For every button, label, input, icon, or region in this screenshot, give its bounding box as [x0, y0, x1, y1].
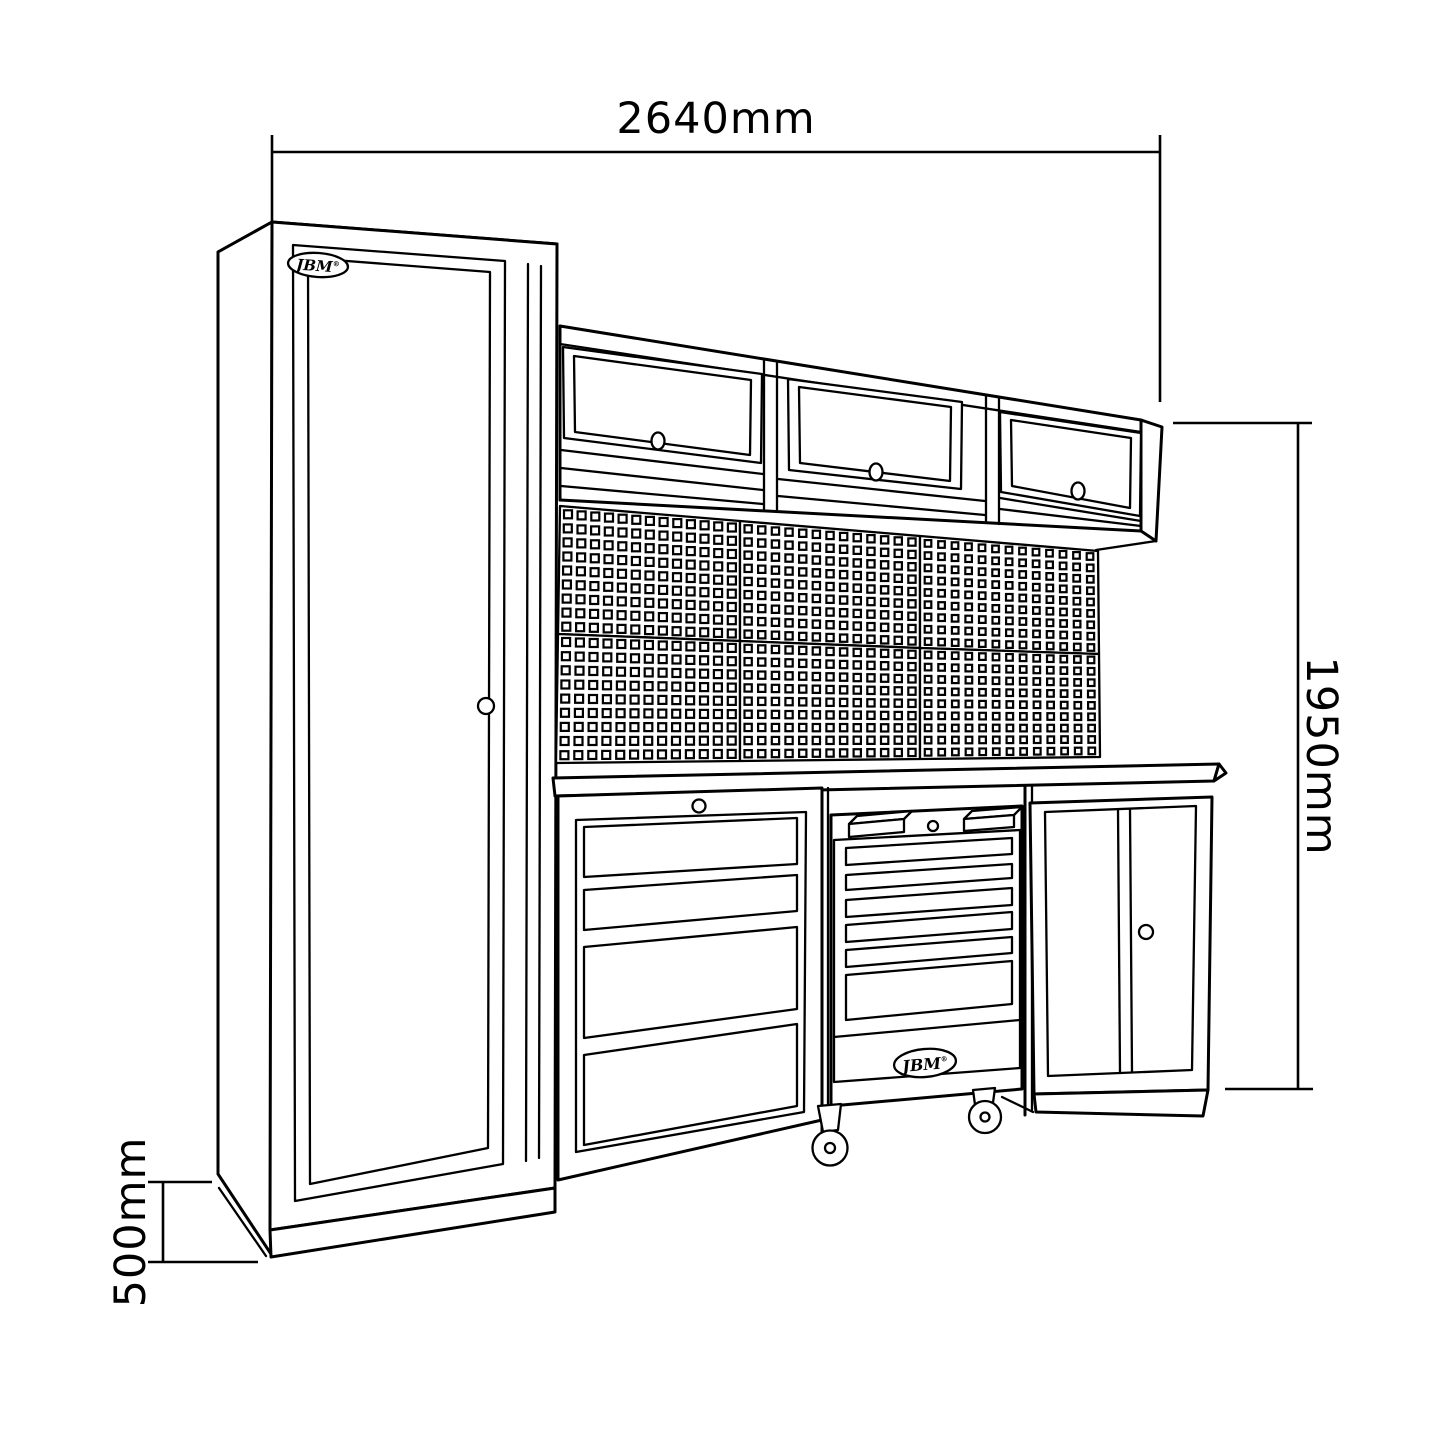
pegboard-hole	[745, 552, 752, 559]
pegboard-hole	[714, 629, 722, 637]
pegboard-hole	[1061, 679, 1068, 686]
pegboard-hole	[575, 681, 583, 689]
pegboard-hole	[925, 725, 932, 732]
pegboard-hole	[745, 578, 752, 585]
pegboard-hole	[686, 696, 694, 704]
pegboard-hole	[728, 603, 736, 611]
pegboard-hole	[562, 652, 570, 660]
pegboard-hole	[575, 723, 583, 731]
pegboard-hole	[758, 539, 765, 546]
pegboard-hole	[758, 618, 765, 625]
pegboard-hole	[1006, 689, 1013, 696]
pegboard-hole	[1034, 667, 1041, 674]
pegboard-hole	[630, 737, 638, 745]
pegboard-hole	[785, 750, 792, 757]
pegboard-hole	[867, 737, 874, 744]
pegboard-hole	[672, 669, 680, 677]
pegboard-hole	[659, 572, 667, 580]
bay-floor-edge	[1002, 1097, 1033, 1112]
pegboard-hole	[813, 595, 820, 602]
wall-unit-soffit-edge	[1096, 541, 1156, 550]
pegboard-hole	[745, 671, 752, 678]
pegboard-hole	[813, 544, 820, 551]
pegboard-hole	[925, 626, 932, 633]
pegboard-hole	[659, 600, 667, 608]
pegboard-hole	[881, 599, 888, 606]
pegboard-hole	[631, 682, 639, 690]
pegboard-hole	[728, 670, 736, 678]
pegboard-hole	[993, 629, 1000, 636]
pegboard-hole	[686, 628, 694, 636]
pegboard-hole	[979, 737, 986, 744]
pegboard-hole	[562, 638, 570, 646]
pegboard-hole	[687, 587, 695, 595]
wall-unit-right-side-face	[1141, 420, 1162, 541]
pegboard-hole	[644, 709, 652, 717]
pegboard-hole	[1074, 691, 1081, 698]
pegboard-hole	[1020, 595, 1027, 602]
pegboard-hole	[714, 670, 722, 678]
pegboard-hole	[1006, 606, 1013, 613]
pegboard-hole	[938, 725, 945, 732]
pegboard-hole	[576, 653, 584, 661]
pegboard-hole	[840, 661, 847, 668]
pegboard-hole	[700, 643, 708, 651]
pegboard-hole	[908, 688, 915, 695]
pegboard-hole	[658, 696, 666, 704]
pegboard-hole	[575, 695, 583, 703]
pegboard-hole	[1061, 690, 1068, 697]
pegboard-hole	[589, 695, 597, 703]
pegboard-hole	[575, 709, 583, 717]
pegboard-hole	[632, 571, 640, 579]
pegboard-hole	[908, 712, 915, 719]
pegboard-hole	[714, 710, 722, 718]
pegboard-hole	[1074, 656, 1081, 663]
pegboard-hole	[646, 544, 654, 552]
pegboard-hole	[1074, 632, 1081, 639]
pegboard-hole	[686, 737, 694, 745]
tall-cabinet-lock-knob	[478, 698, 494, 714]
pegboard-hole	[631, 626, 639, 634]
pegboard-hole	[992, 558, 999, 565]
pegboard-hole	[564, 524, 572, 532]
pegboard-hole	[561, 737, 569, 745]
pegboard-hole	[785, 711, 792, 718]
pegboard-hole	[619, 515, 627, 523]
pegboard-hole	[758, 526, 765, 533]
pegboard-hole	[1087, 610, 1094, 617]
pegboard-hole	[965, 592, 972, 599]
pegboard-hole	[993, 666, 1000, 673]
pegboard-hole	[590, 596, 598, 604]
pegboard-hole	[618, 625, 626, 633]
wall-cabinet-door-1	[561, 347, 763, 504]
pegboard-hole	[700, 737, 708, 745]
pegboard-hole	[1047, 620, 1054, 627]
pegboard-hole	[826, 699, 833, 706]
pegboard-hole	[840, 674, 847, 681]
pegboard-hole	[1006, 654, 1013, 661]
pegboard-hole	[578, 525, 586, 533]
pegboard-hole	[686, 750, 694, 758]
pegboard-hole	[745, 604, 752, 611]
pegboard-hole	[952, 627, 959, 634]
pegboard-hole	[938, 652, 945, 659]
pegboard-hole	[758, 672, 765, 679]
pegboard-hole	[979, 677, 986, 684]
pegboard-hole	[826, 661, 833, 668]
pegboard-hole	[993, 677, 1000, 684]
pegboard-hole	[785, 737, 792, 744]
pegboard-hole	[645, 599, 653, 607]
pegboard-hole	[952, 567, 959, 574]
pegboard-hole	[745, 631, 752, 638]
pegboard-hole	[1046, 562, 1053, 569]
pegboard-hole	[840, 596, 847, 603]
pegboard-hole	[616, 751, 624, 759]
pegboard-hole	[1046, 550, 1053, 557]
pegboard-hole	[952, 554, 959, 561]
pegboard-hole	[1073, 552, 1080, 559]
pegboard-hole	[895, 712, 902, 719]
pegboard-hole	[799, 698, 806, 705]
pegboard-hole	[714, 683, 722, 691]
pegboard-hole	[617, 682, 625, 690]
pegboard-hole	[590, 639, 598, 647]
pegboard-hole	[644, 737, 652, 745]
pegboard-hole	[578, 511, 586, 519]
height-dimension-label: 1950mm	[1296, 656, 1346, 855]
pegboard-hole	[745, 525, 752, 532]
pegboard-hole	[700, 710, 708, 718]
pegboard-hole	[1020, 737, 1027, 744]
pegboard-hole	[1020, 690, 1027, 697]
pegboard-hole	[714, 643, 722, 651]
pegboard-hole	[645, 612, 653, 620]
pegboard-hole	[618, 597, 626, 605]
pegboard-hole	[1047, 690, 1054, 697]
pegboard-hole	[979, 580, 986, 587]
pegboard-hole	[966, 713, 973, 720]
pegboard-hole	[854, 635, 861, 642]
pegboard-hole	[758, 553, 765, 560]
pegboard-hole	[645, 696, 653, 704]
pegboard-hole	[1087, 599, 1094, 606]
pegboard-hole	[605, 514, 613, 522]
pegboard-hole	[840, 749, 847, 756]
pegboard-hole	[700, 615, 708, 623]
pegboard-hole	[700, 628, 708, 636]
pegboard-hole	[658, 710, 666, 718]
pegboard-hole	[799, 660, 806, 667]
pegboard-hole	[799, 543, 806, 550]
pegboard-hole	[590, 624, 598, 632]
pegboard-hole	[562, 623, 570, 631]
pegboard-hole	[908, 675, 915, 682]
pegboard-hole	[993, 713, 1000, 720]
pegboard-hole	[561, 681, 569, 689]
pegboard-hole	[785, 672, 792, 679]
pegboard-hole	[993, 748, 1000, 755]
pegboard-hole	[799, 568, 806, 575]
pegboard-hole	[1007, 713, 1014, 720]
pegboard-hole	[1034, 713, 1041, 720]
pegboard-hole	[1075, 748, 1082, 755]
pegboard-hole	[785, 529, 792, 536]
pegboard-hole	[881, 675, 888, 682]
pegboard-hole	[631, 612, 639, 620]
pegboard-hole	[993, 654, 1000, 661]
pegboard-hole	[1075, 736, 1082, 743]
pegboard-hole	[772, 593, 779, 600]
pegboard-hole	[673, 656, 681, 664]
pegboard-hole	[799, 737, 806, 744]
pegboard-hole	[908, 576, 915, 583]
pegboard-hole	[617, 654, 625, 662]
pegboard-hole	[867, 636, 874, 643]
pegboard-hole	[1074, 621, 1081, 628]
pegboard-hole	[562, 666, 570, 674]
pegboard-hole	[826, 596, 833, 603]
pegboard-hole	[1046, 573, 1053, 580]
pegboard-hole	[826, 673, 833, 680]
pegboard-hole	[687, 547, 695, 555]
pegboard-hole	[560, 751, 568, 759]
pegboard-hole	[938, 713, 945, 720]
pegboard-hole	[589, 681, 597, 689]
pegboard-hole	[561, 695, 569, 703]
pegboard-hole	[895, 663, 902, 670]
pegboard-hole	[1006, 559, 1013, 566]
pegboard-hole	[701, 521, 709, 529]
pegboard-hole	[1074, 609, 1081, 616]
pegboard-hole	[687, 561, 695, 569]
pegboard-hole	[577, 581, 585, 589]
caster-fork	[818, 1104, 841, 1132]
pegboard-hole	[1019, 571, 1026, 578]
pegboard-hole	[854, 686, 861, 693]
pegboard-hole	[745, 591, 752, 598]
pegboard-hole	[758, 658, 765, 665]
pegboard-hole	[714, 576, 722, 584]
pegboard-hole	[826, 570, 833, 577]
pegboard-hole	[745, 538, 752, 545]
pegboard-hole	[588, 751, 596, 759]
pegboard-hole	[700, 670, 708, 678]
pegboard-hole	[826, 648, 833, 655]
pegboard-hole	[840, 546, 847, 553]
pegboard-hole	[1006, 570, 1013, 577]
pegboard-hole	[1060, 563, 1067, 570]
pegboard-hole	[659, 682, 667, 690]
pegboard-hole	[758, 685, 765, 692]
pegboard-hole	[799, 711, 806, 718]
pegboard-hole	[854, 737, 861, 744]
pegboard-hole	[908, 749, 915, 756]
pegboard-hole	[867, 699, 874, 706]
pegboard-hole	[925, 540, 932, 547]
pegboard-hole	[881, 749, 888, 756]
pegboard-hole	[925, 589, 932, 596]
pegboard-hole	[772, 554, 779, 561]
pegboard-hole	[564, 510, 572, 518]
pegboard-hole	[895, 650, 902, 657]
pegboard-hole	[1033, 561, 1040, 568]
pegboard-hole	[687, 614, 695, 622]
pegboard-hole	[938, 664, 945, 671]
pegboard-hole	[745, 724, 752, 731]
handle-front-face	[964, 815, 1014, 831]
pegboard-hole	[908, 651, 915, 658]
pegboard-hole	[659, 627, 667, 635]
pegboard-hole	[813, 673, 820, 680]
pegboard-hole	[1088, 679, 1095, 686]
pegboard-hole	[617, 695, 625, 703]
pegboard-hole	[745, 684, 752, 691]
pegboard-hole	[604, 640, 612, 648]
pegboard-hole	[758, 750, 765, 757]
pegboard-hole	[1020, 630, 1027, 637]
pegboard-hole	[1047, 702, 1054, 709]
pegboard-hole	[1006, 629, 1013, 636]
pegboard-hole	[1047, 585, 1054, 592]
pegboard-hole	[603, 695, 611, 703]
pegboard-hole	[714, 536, 722, 544]
pegboard-hole	[952, 615, 959, 622]
wall-door-knob	[870, 464, 883, 481]
depth-dimension-label: 500mm	[106, 1137, 156, 1308]
pegboard-hole	[813, 531, 820, 538]
pegboard-hole	[854, 559, 861, 566]
pegboard-hole	[895, 587, 902, 594]
pegboard-hole	[660, 532, 668, 540]
pegboard-hole	[1006, 594, 1013, 601]
pegboard-hole	[854, 712, 861, 719]
pegboard-hole	[591, 513, 599, 521]
pegboard-hole	[813, 686, 820, 693]
pegboard-hole	[895, 749, 902, 756]
pegboard-hole	[1020, 748, 1027, 755]
pegboard-hole	[772, 711, 779, 718]
pegboard-hole	[1047, 713, 1054, 720]
roller-tool-cabinet: JBM®	[813, 806, 1023, 1166]
pegboard-hole	[577, 567, 585, 575]
pegboard-hole	[772, 632, 779, 639]
pegboard-hole	[772, 737, 779, 744]
pegboard-hole	[1020, 701, 1027, 708]
pegboard-hole	[563, 581, 571, 589]
pegboard-hole	[799, 750, 806, 757]
pegboard-hole	[1034, 702, 1041, 709]
pegboard-hole	[728, 537, 736, 545]
pegboard-hole	[799, 594, 806, 601]
wall-cabinet-door-2	[778, 379, 985, 515]
door-cabinet-plinth	[1034, 1090, 1208, 1116]
pegboard-hole	[1074, 644, 1081, 651]
pegboard-hole	[867, 548, 874, 555]
pegboard-hole	[799, 633, 806, 640]
pegboard-hole	[1047, 608, 1054, 615]
pegboard-hole	[1006, 666, 1013, 673]
pegboard-hole	[925, 577, 932, 584]
pegboard-hole	[728, 684, 736, 692]
pegboard-hole	[714, 657, 722, 665]
pegboard-hole	[1061, 656, 1068, 663]
pegboard-hole	[1060, 643, 1067, 650]
pegboard-hole	[618, 556, 626, 564]
pegboard-hole	[1019, 560, 1026, 567]
pegboard-hole	[772, 540, 779, 547]
pegboard-hole	[785, 632, 792, 639]
pegboard-hole	[925, 552, 932, 559]
pegboard-hole	[772, 750, 779, 757]
pegboard-hole	[854, 699, 861, 706]
pegboard-hole	[826, 608, 833, 615]
pegboard-hole	[966, 665, 973, 672]
pegboard-hole	[840, 699, 847, 706]
pegboard-hole	[895, 612, 902, 619]
pegboard-hole	[1061, 702, 1068, 709]
pegboard-hole	[604, 611, 612, 619]
pegboard-hole	[840, 533, 847, 540]
pegboard-hole	[1006, 678, 1013, 685]
pegboard-hole	[603, 681, 611, 689]
pegboard-hole	[867, 623, 874, 630]
pegboard-hole	[1006, 582, 1013, 589]
pegboard-hole	[602, 737, 610, 745]
pegboard-hole	[785, 698, 792, 705]
pegboard-hole	[1061, 667, 1068, 674]
pegboard-hole	[1034, 736, 1041, 743]
pegboard-hole	[714, 750, 722, 758]
pegboard-hole	[728, 630, 736, 638]
pegboard-hole	[813, 556, 820, 563]
pegboard-hole	[659, 655, 667, 663]
pegboard-hole	[1060, 586, 1067, 593]
pegboard-hole	[1033, 607, 1040, 614]
pegboard-hole	[895, 537, 902, 544]
pegboard-hole	[630, 723, 638, 731]
pegboard-hole	[1007, 737, 1014, 744]
pegboard-hole	[799, 530, 806, 537]
pegboard-hole	[618, 570, 626, 578]
pegboard-hole	[631, 654, 639, 662]
pegboard-hole	[1047, 655, 1054, 662]
pegboard-hole	[966, 689, 973, 696]
pegboard-hole	[965, 555, 972, 562]
pegboard-hole	[714, 697, 722, 705]
pegboard-hole	[895, 675, 902, 682]
pegboard-hole	[619, 529, 627, 537]
pegboard-hole	[966, 640, 973, 647]
pegboard-hole	[1020, 666, 1027, 673]
pegboard-hole	[575, 737, 583, 745]
pegboard-hole	[867, 724, 874, 731]
pegboard-hole	[799, 647, 806, 654]
pegboard-hole	[785, 646, 792, 653]
pegboard-hole	[925, 664, 932, 671]
pegboard-hole	[576, 639, 584, 647]
pegboard-hole	[925, 700, 932, 707]
pegboard-hole	[867, 598, 874, 605]
pegboard-hole	[1074, 668, 1081, 675]
roller-cabinet-lock	[928, 821, 938, 831]
pegboard-hole	[993, 725, 1000, 732]
pegboard-hole	[895, 737, 902, 744]
pegboard-hole	[577, 595, 585, 603]
pegboard-hole	[700, 656, 708, 664]
